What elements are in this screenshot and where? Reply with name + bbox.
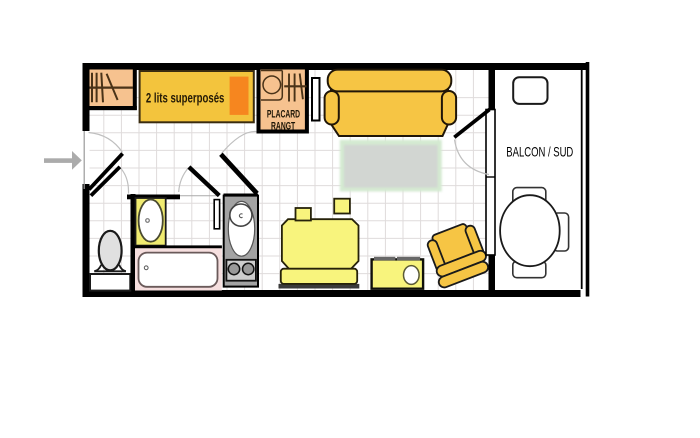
svg-text:BALCON / SUD: BALCON / SUD xyxy=(506,144,573,160)
svg-text:RANGT: RANGT xyxy=(271,120,295,132)
svg-text:2 lits superposés: 2 lits superposés xyxy=(146,90,225,106)
svg-text:PLACARD: PLACARD xyxy=(267,108,300,120)
